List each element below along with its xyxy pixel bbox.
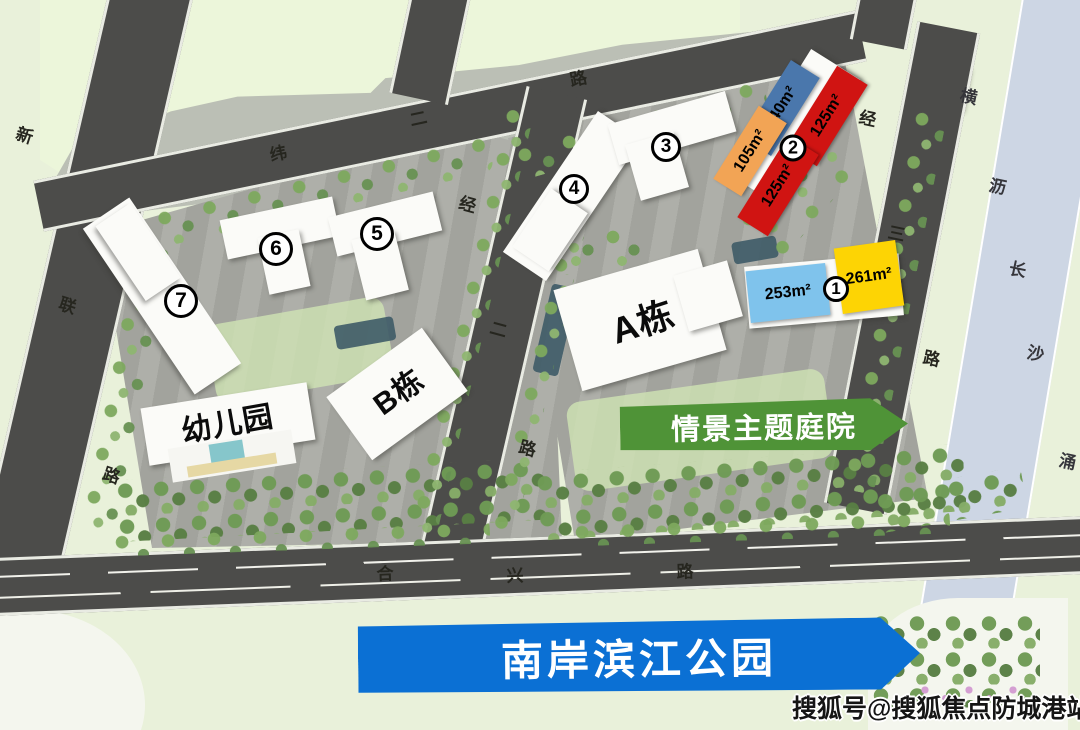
watermark: 搜狐号@搜狐焦点防城港站 (792, 689, 1080, 725)
building-number-badge-3: 3 (651, 132, 681, 162)
path-curve-bottom-left (0, 610, 145, 730)
building-number-badge-1: 1 (823, 276, 849, 302)
unit-tag-261: 261m² (834, 240, 905, 314)
road-label-jingsan-char: 路 (921, 343, 943, 371)
road-label-jingsan-char: 经 (857, 103, 879, 131)
road-label-hexing-char: 路 (676, 557, 694, 583)
road-label-hexing-char: 兴 (506, 561, 524, 587)
park-banner: 南岸滨江公园 (358, 617, 921, 695)
unit-tag-label: 253m² (764, 282, 812, 305)
river-label-char: 横 (958, 81, 980, 109)
unit-tag-253: 253m² (746, 263, 831, 323)
building-number-badge-4: 4 (559, 174, 589, 204)
building-number-badge-6: 6 (259, 232, 293, 266)
building-number-badge-5: 5 (360, 217, 394, 251)
unit-tag-label: 261m² (845, 265, 893, 289)
building-number-badge-2: 2 (780, 135, 807, 162)
courtyard-banner-text: 情景主题庭院 (671, 403, 858, 448)
site-plan-map: A栋 B栋 幼儿园 7 6 5 4 3 2 1 140m² 125m² 105m… (0, 0, 1080, 730)
road-label-xinlian-char: 新 (13, 119, 37, 148)
road-label-hexing-char: 合 (376, 559, 394, 585)
building-number-badge-7: 7 (164, 284, 198, 318)
park-banner-text: 南岸滨江公园 (501, 624, 778, 688)
river-label-char: 涌 (1057, 446, 1079, 474)
